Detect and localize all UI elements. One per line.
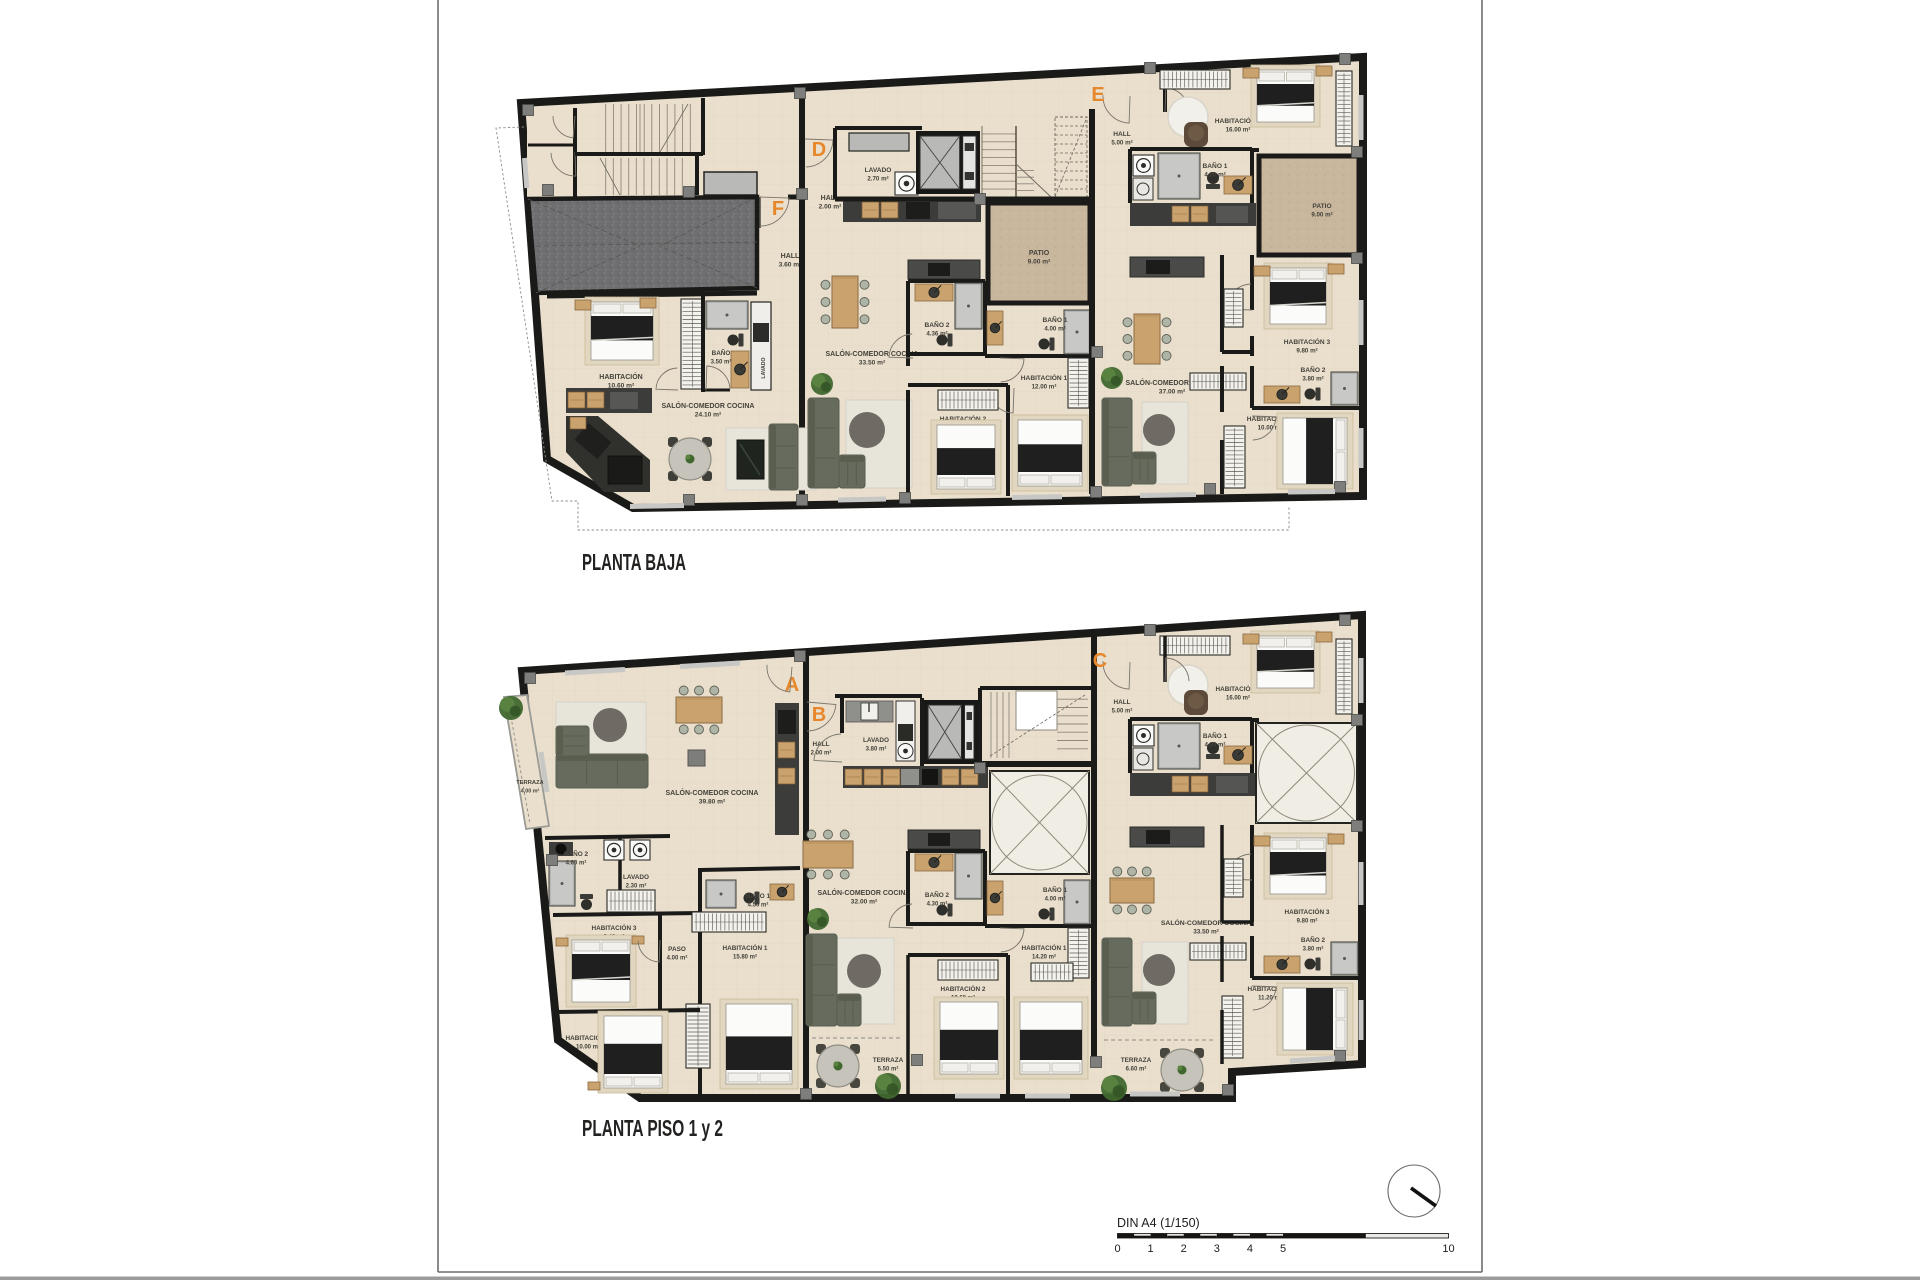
svg-text:6.60 m²: 6.60 m² — [1126, 1066, 1147, 1073]
svg-text:PLANTA BAJA: PLANTA BAJA — [582, 549, 686, 575]
svg-text:HABITACIÓN 1: HABITACIÓN 1 — [1021, 373, 1068, 382]
svg-text:PATIO: PATIO — [1312, 203, 1331, 210]
svg-text:C: C — [1093, 650, 1107, 672]
svg-text:BAÑO 1: BAÑO 1 — [1043, 315, 1068, 324]
svg-text:TERRAZA: TERRAZA — [516, 780, 545, 786]
svg-text:5: 5 — [1280, 1243, 1286, 1255]
svg-text:BAÑO: BAÑO — [712, 348, 731, 357]
svg-text:HABITACIÓN 1: HABITACIÓN 1 — [723, 943, 768, 952]
svg-text:9.80 m²: 9.80 m² — [1296, 348, 1317, 355]
svg-text:4.30 m²: 4.30 m² — [927, 901, 948, 908]
svg-text:9.00 m²: 9.00 m² — [1028, 259, 1052, 266]
svg-text:2.70 m²: 2.70 m² — [867, 176, 888, 183]
svg-text:4.20 m²: 4.20 m² — [1204, 172, 1225, 179]
svg-text:12.00 m²: 12.00 m² — [1032, 384, 1057, 391]
svg-text:BAÑO 2: BAÑO 2 — [564, 849, 589, 858]
svg-text:BAÑO 1: BAÑO 1 — [1043, 885, 1068, 894]
svg-text:PLANTA PISO 1 y 2: PLANTA PISO 1 y 2 — [582, 1115, 723, 1141]
svg-text:4.00 m²: 4.00 m² — [1045, 896, 1066, 903]
svg-text:BAÑO 2: BAÑO 2 — [925, 320, 950, 329]
svg-text:16.00 m²: 16.00 m² — [1226, 695, 1250, 702]
svg-text:SALÓN-COMEDOR COCINA: SALÓN-COMEDOR COCINA — [826, 349, 919, 358]
svg-text:37.00 m²: 37.00 m² — [1159, 389, 1186, 396]
svg-text:D: D — [812, 139, 826, 161]
svg-text:E: E — [1091, 84, 1104, 106]
svg-text:LAVADO: LAVADO — [865, 167, 892, 174]
svg-text:5.00 m²: 5.00 m² — [1111, 140, 1132, 147]
svg-text:HABITACIÓN 3: HABITACIÓN 3 — [1285, 907, 1330, 916]
svg-text:BAÑO 1: BAÑO 1 — [746, 891, 771, 900]
svg-text:SALÓN-COMEDOR COCINA: SALÓN-COMEDOR COCINA — [662, 401, 755, 410]
svg-text:10: 10 — [1442, 1243, 1454, 1255]
svg-text:BAÑO 1: BAÑO 1 — [1203, 731, 1228, 740]
svg-text:9.00 m²: 9.00 m² — [1311, 212, 1332, 219]
svg-text:HALL: HALL — [1113, 699, 1130, 706]
svg-text:HABITACIÓN 3: HABITACIÓN 3 — [592, 923, 637, 932]
svg-text:PATIO: PATIO — [1029, 250, 1050, 257]
svg-text:4.50 m²: 4.50 m² — [748, 902, 769, 909]
svg-text:PASO: PASO — [668, 946, 686, 953]
svg-text:HABITACIÓN 3: HABITACIÓN 3 — [1284, 337, 1331, 346]
svg-text:4: 4 — [1247, 1243, 1253, 1255]
svg-text:3.80 m²: 3.80 m² — [866, 746, 887, 753]
svg-text:2: 2 — [1181, 1243, 1187, 1255]
svg-text:15.80 m²: 15.80 m² — [733, 954, 757, 961]
svg-text:SALÓN-COMEDOR COCINA: SALÓN-COMEDOR COCINA — [666, 788, 759, 797]
svg-text:BAÑO 2: BAÑO 2 — [925, 890, 950, 899]
svg-text:2.00 m²: 2.00 m² — [811, 750, 832, 757]
svg-text:16.00 m²: 16.00 m² — [1226, 127, 1251, 134]
svg-text:3.80 m²: 3.80 m² — [1303, 946, 1324, 953]
svg-text:33.50 m²: 33.50 m² — [1193, 929, 1219, 936]
svg-text:LAVADO: LAVADO — [761, 357, 767, 378]
svg-text:BAÑO 2: BAÑO 2 — [1301, 365, 1326, 374]
svg-text:HABITACIÓN 2: HABITACIÓN 2 — [941, 984, 986, 993]
svg-text:HABITACIÓN 1: HABITACIÓN 1 — [1022, 943, 1067, 952]
svg-text:0: 0 — [1114, 1243, 1120, 1255]
svg-text:HALL: HALL — [781, 253, 800, 260]
svg-text:4.00 m²: 4.00 m² — [521, 789, 540, 795]
svg-text:DIN A4 (1/150): DIN A4 (1/150) — [1117, 1216, 1200, 1230]
svg-text:32.00 m²: 32.00 m² — [851, 899, 878, 906]
svg-text:10.00 m²: 10.00 m² — [576, 1044, 600, 1051]
svg-text:4.20 m²: 4.20 m² — [1205, 742, 1226, 749]
svg-text:BAÑO 1: BAÑO 1 — [1203, 161, 1228, 170]
svg-text:1: 1 — [1148, 1243, 1154, 1255]
svg-text:LAVADO: LAVADO — [863, 737, 889, 744]
svg-text:4.60 m²: 4.60 m² — [566, 860, 587, 867]
svg-text:B: B — [812, 704, 826, 726]
svg-text:33.50 m²: 33.50 m² — [859, 360, 886, 367]
svg-text:HALL: HALL — [812, 741, 829, 748]
svg-text:4.00 m²: 4.00 m² — [667, 955, 688, 962]
svg-text:39.80 m²: 39.80 m² — [699, 799, 726, 806]
svg-text:A: A — [785, 674, 799, 696]
svg-text:HABITACIÓN: HABITACIÓN — [599, 372, 642, 381]
svg-text:F: F — [772, 198, 784, 220]
svg-text:LAVADO: LAVADO — [623, 874, 649, 881]
svg-text:24.10 m²: 24.10 m² — [695, 412, 722, 419]
svg-text:3.50 m²: 3.50 m² — [711, 359, 732, 366]
svg-text:5.50 m²: 5.50 m² — [878, 1066, 899, 1073]
svg-text:3: 3 — [1214, 1243, 1220, 1255]
svg-text:3.80 m²: 3.80 m² — [1302, 376, 1323, 383]
svg-text:5.00 m²: 5.00 m² — [1112, 708, 1133, 715]
svg-text:HALL: HALL — [1113, 131, 1131, 138]
svg-text:4.36 m²: 4.36 m² — [926, 331, 947, 338]
svg-text:TERRAZA: TERRAZA — [873, 1057, 904, 1064]
svg-text:BAÑO 2: BAÑO 2 — [1301, 935, 1326, 944]
svg-text:3.60 m²: 3.60 m² — [779, 262, 803, 269]
svg-text:14.20 m²: 14.20 m² — [1032, 954, 1056, 961]
svg-text:4.00 m²: 4.00 m² — [1044, 326, 1065, 333]
svg-text:2.00 m²: 2.00 m² — [819, 204, 843, 211]
svg-text:2.30 m²: 2.30 m² — [626, 883, 647, 890]
svg-text:TERRAZA: TERRAZA — [1121, 1057, 1152, 1064]
svg-text:9.80 m²: 9.80 m² — [1297, 918, 1318, 925]
svg-text:SALÓN-COMEDOR COCINA: SALÓN-COMEDOR COCINA — [818, 888, 911, 897]
